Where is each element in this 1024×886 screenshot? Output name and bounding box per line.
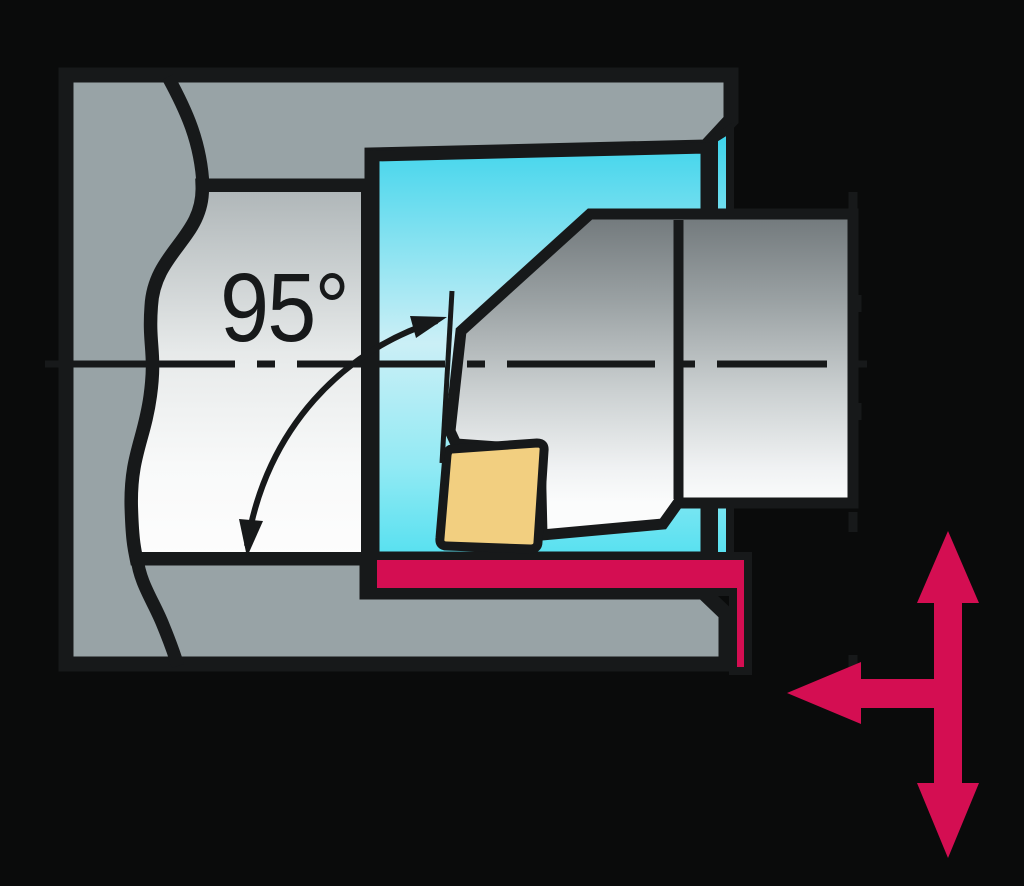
cutting-insert: [440, 443, 544, 549]
boring-tool-diagram: 95°: [0, 0, 1024, 886]
bore-entry-chamfer-bottom: [714, 504, 730, 559]
bore-entry-chamfer-top: [714, 129, 730, 213]
angle-label: 95°: [220, 253, 348, 362]
figure-canvas: 95°: [0, 0, 1024, 886]
